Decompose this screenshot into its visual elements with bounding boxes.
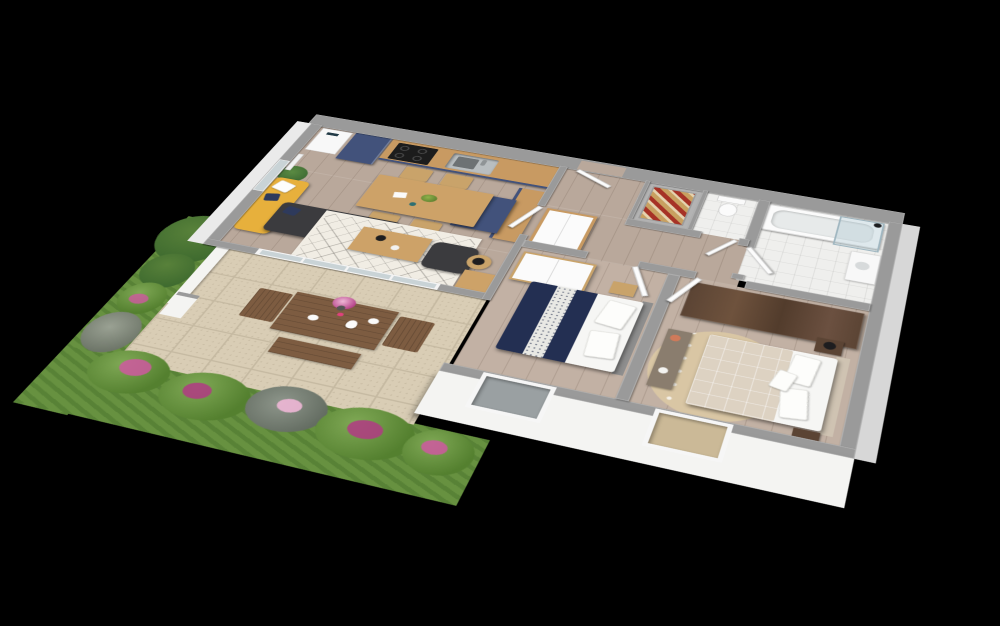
floorplan-scene (0, 0, 1000, 563)
cushion-navy-1 (263, 193, 281, 201)
apartment-floorplan (7, 99, 973, 626)
bed2-pillow-bottom (778, 387, 808, 421)
render-canvas: { "scene": { "type": "3d-floor-plan-rend… (0, 0, 1000, 563)
table-paper (393, 192, 408, 198)
